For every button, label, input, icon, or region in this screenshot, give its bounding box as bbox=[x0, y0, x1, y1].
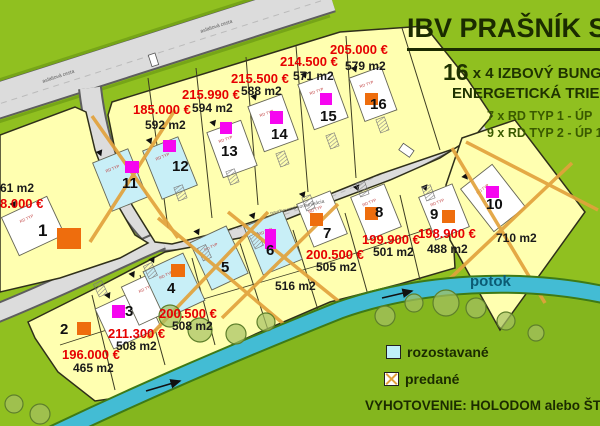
legend-footer: VYHOTOVENIE: HOLODOM alebo ŠTA bbox=[365, 399, 600, 413]
legend-sold: predané bbox=[384, 371, 459, 387]
plot-2-area: 465 m2 bbox=[73, 362, 114, 374]
plot-7-area: 505 m2 bbox=[316, 261, 357, 273]
sold-swatch-icon bbox=[384, 372, 399, 386]
plot-14-area: 588 m2 bbox=[241, 85, 282, 97]
plot-2-marker bbox=[77, 322, 91, 335]
plot-1-price: 8.000 € bbox=[0, 197, 43, 210]
plot-9-price: 198.900 € bbox=[418, 227, 476, 240]
plot-1-marker bbox=[57, 228, 81, 249]
plot-14-number: 14 bbox=[271, 127, 288, 142]
plot-8-area: 501 m2 bbox=[373, 246, 414, 258]
plot-2-price: 196.000 € bbox=[62, 348, 120, 361]
plot-15-marker bbox=[320, 93, 332, 105]
title-energy-line: ENERGETICKÁ TRIE bbox=[452, 86, 600, 101]
plot-9-area: 488 m2 bbox=[427, 243, 468, 255]
plot-12-number: 12 bbox=[172, 159, 189, 174]
plot-1-area: 61 m2 bbox=[0, 182, 34, 194]
plot-10-area: 710 m2 bbox=[496, 232, 537, 244]
plot-16-area: 579 m2 bbox=[345, 60, 386, 72]
legend-under-construction: rozostavané bbox=[386, 344, 489, 360]
under-construction-swatch-icon bbox=[386, 345, 401, 359]
title-units-rest: x 4 IZBOVÝ BUNG bbox=[473, 65, 600, 82]
plot-3-number: 3 bbox=[125, 304, 133, 319]
plot-6-area: 516 m2 bbox=[275, 280, 316, 292]
plot-13-price: 215.990 € bbox=[182, 88, 240, 101]
stream-label: potok bbox=[470, 274, 511, 289]
plot-2-number: 2 bbox=[60, 322, 68, 337]
plot-13-area: 594 m2 bbox=[192, 102, 233, 114]
plot-7-marker bbox=[310, 213, 323, 226]
plot-11-number: 11 bbox=[122, 176, 138, 191]
plot-14-marker bbox=[270, 111, 283, 124]
plot-3-marker bbox=[112, 305, 125, 318]
plot-13-number: 13 bbox=[221, 144, 238, 159]
plot-7-number: 7 bbox=[323, 226, 331, 241]
title-type2-line: 9 x RD TYP 2 - ÚP 1 bbox=[487, 127, 600, 140]
title-underline bbox=[407, 48, 600, 51]
plot-16-price: 205.000 € bbox=[330, 43, 388, 56]
plot-8-number: 8 bbox=[375, 205, 383, 220]
plot-10-number: 10 bbox=[486, 197, 503, 212]
plot-4-area: 508 m2 bbox=[172, 320, 213, 332]
sold-label: predané bbox=[405, 371, 459, 387]
plot-16-number: 16 bbox=[370, 97, 387, 112]
plot-4-number: 4 bbox=[167, 281, 175, 296]
plot-5-number: 5 bbox=[221, 260, 229, 275]
plot-15-number: 15 bbox=[320, 109, 337, 124]
page-title: IBV PRAŠNÍK ST bbox=[407, 15, 600, 42]
title-type1-line: 7 x RD TYP 1 - ÚP bbox=[487, 110, 592, 123]
plot-9-number: 9 bbox=[430, 207, 438, 222]
plot-9-marker bbox=[442, 210, 455, 223]
plot-1-number: 1 bbox=[38, 222, 47, 239]
plot-12-marker bbox=[163, 140, 176, 152]
title-units-line: 16 x 4 IZBOVÝ BUNG bbox=[443, 61, 600, 84]
plot-6-number: 6 bbox=[266, 243, 274, 258]
plot-11-marker bbox=[125, 161, 139, 173]
under-construction-label: rozostavané bbox=[407, 344, 489, 360]
plot-13-marker bbox=[220, 122, 232, 134]
plot-12-area: 592 m2 bbox=[145, 119, 186, 131]
plot-15-area: 571 m2 bbox=[293, 70, 334, 82]
plot-4-marker bbox=[171, 264, 185, 277]
site-plan-page: RD TYP RD TYP RD TYP RD TYP RD TYP RD TY… bbox=[0, 0, 600, 426]
plot-12-price: 185.000 € bbox=[133, 103, 191, 116]
plot-3-area: 508 m2 bbox=[116, 340, 157, 352]
title-units-count: 16 bbox=[443, 59, 469, 85]
